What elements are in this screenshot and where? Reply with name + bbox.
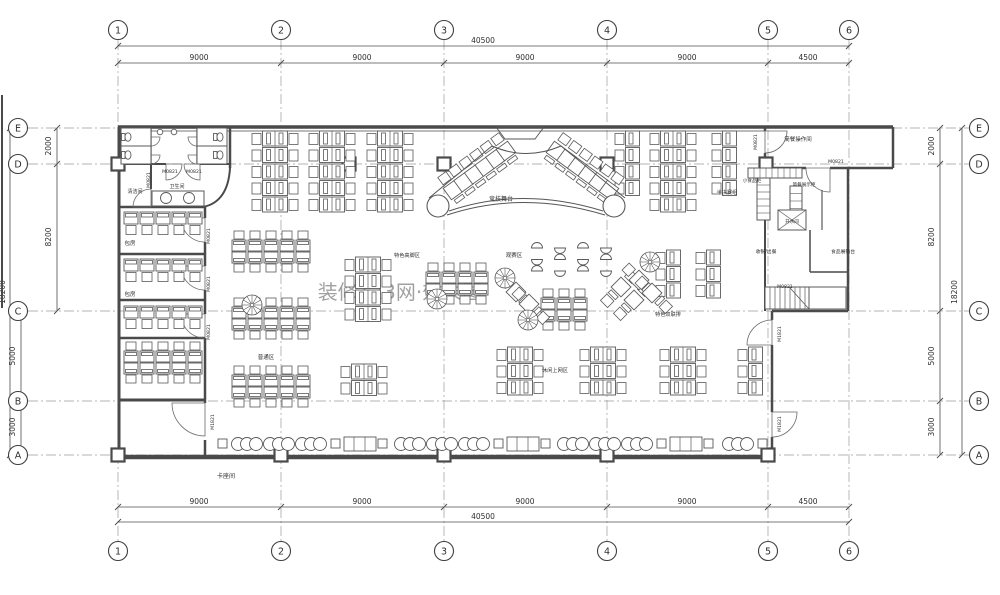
room-label: 小食品柜 (743, 177, 762, 184)
grid-bubble-label: B (15, 396, 22, 407)
dimension-text: 8200 (927, 227, 936, 246)
dimension-text: 40500 (471, 512, 495, 521)
grid-bubble-label: E (976, 123, 982, 134)
room-label: 休闲上网区 (542, 366, 568, 374)
grid-bubble-label: C (15, 306, 22, 317)
room-label: M0821 (828, 159, 844, 165)
room-label: M0821 (162, 169, 178, 175)
room-label: 收银/出餐 (756, 248, 777, 255)
room-label: M0821 (206, 324, 212, 340)
dimension-text: 3000 (927, 417, 936, 436)
dimension-text: 9000 (352, 497, 371, 506)
grid-bubble-label: 6 (846, 25, 852, 36)
grid-bubble-label: D (975, 159, 982, 170)
grid-bubble-label: 2 (278, 25, 284, 36)
dimension-text: 9000 (189, 497, 208, 506)
parasol-table (518, 310, 538, 330)
grid-bubble-label: B (976, 396, 983, 407)
room-label: M0821 (186, 169, 202, 175)
parasol-table (427, 289, 447, 309)
room-label: 包房 (124, 290, 136, 298)
column-marker (438, 158, 451, 171)
room-label: 包房 (124, 239, 136, 247)
room-label: 卡座间 (217, 472, 235, 480)
dimension-text: 4500 (798, 53, 817, 62)
grid-bubble-label: 5 (765, 546, 771, 557)
dimension-text: 3000 (8, 417, 17, 436)
dimension-text: 2000 (927, 136, 936, 155)
room-label: 简餐展示柜 (793, 181, 816, 188)
room-label: 简餐操作间 (784, 135, 812, 143)
service-counter (748, 168, 802, 178)
room-label: M0821 (206, 228, 212, 244)
grid-bubble-label: 1 (115, 546, 121, 557)
room-label: 观赛区 (506, 251, 523, 259)
toilet-icon (217, 133, 223, 141)
room-label: 开水间 (785, 218, 799, 225)
dimension-text: 4500 (798, 497, 817, 506)
grid-bubble-label: C (976, 306, 983, 317)
staircase (809, 287, 846, 309)
grid-bubble-label: 1 (115, 25, 121, 36)
parasol-table (495, 268, 515, 288)
grid-bubble-label: 5 (765, 25, 771, 36)
toilet-icon (125, 151, 131, 159)
column-marker (762, 449, 775, 462)
dimension-text: 5000 (8, 346, 17, 365)
room-label: 特色高脚区 (394, 251, 420, 259)
column-marker (112, 449, 125, 462)
room-label: 卫生间 (169, 183, 184, 190)
dimension-text: 9000 (515, 497, 534, 506)
dimension-text: 8200 (44, 227, 53, 246)
grid-bubble-label: 3 (441, 25, 447, 36)
room-label: M0821 (206, 276, 212, 292)
floor-plan-document: 装修123网·效果图405009000900090009000450090009… (0, 0, 1000, 595)
room-label: 食品展销台 (831, 248, 855, 255)
grid-bubble-label: 4 (604, 25, 610, 36)
grid-bubble-label: A (976, 450, 983, 461)
service-counter (757, 178, 770, 220)
grid-bubble-label: D (14, 159, 21, 170)
room-label: M0821 (146, 172, 152, 188)
toilet-icon (125, 133, 131, 141)
dimension-text: 9000 (677, 497, 696, 506)
dimension-text: 40500 (471, 36, 495, 45)
parasol-table (640, 252, 660, 272)
room-label: 竞技舞台 (489, 195, 513, 203)
grid-bubble-label: E (15, 123, 21, 134)
parasol-table (242, 295, 262, 315)
dimension-text: 9000 (189, 53, 208, 62)
room-label: M1821 (210, 414, 216, 430)
grid-bubble-label: 6 (846, 546, 852, 557)
room-label: M1821 (777, 416, 783, 432)
dimension-text: 9000 (677, 53, 696, 62)
grid-bubble-label: 4 (604, 546, 610, 557)
dimension-text: 9000 (515, 53, 534, 62)
room-label: M0821 (777, 284, 793, 290)
staircase (765, 287, 809, 309)
room-label: 普通区 (258, 353, 275, 361)
toilet-icon (217, 151, 223, 159)
room-label: 特色双联排 (655, 310, 681, 318)
room-label: 半决赛组 (717, 188, 738, 196)
dimension-text: 9000 (352, 53, 371, 62)
room-label: 清洁间 (127, 188, 142, 195)
room-label: M0821 (753, 134, 759, 150)
grid-bubble-label: 3 (441, 546, 447, 557)
grid-bubble-label: 2 (278, 546, 284, 557)
floor-plan-canvas: 装修123网·效果图405009000900090009000450090009… (0, 0, 1000, 595)
dimension-text: 5000 (927, 346, 936, 365)
grid-bubble-label: A (15, 450, 22, 461)
dimension-text: 2000 (44, 136, 53, 155)
dimension-text: 18200 (950, 280, 959, 304)
room-label: M1821 (777, 326, 783, 342)
